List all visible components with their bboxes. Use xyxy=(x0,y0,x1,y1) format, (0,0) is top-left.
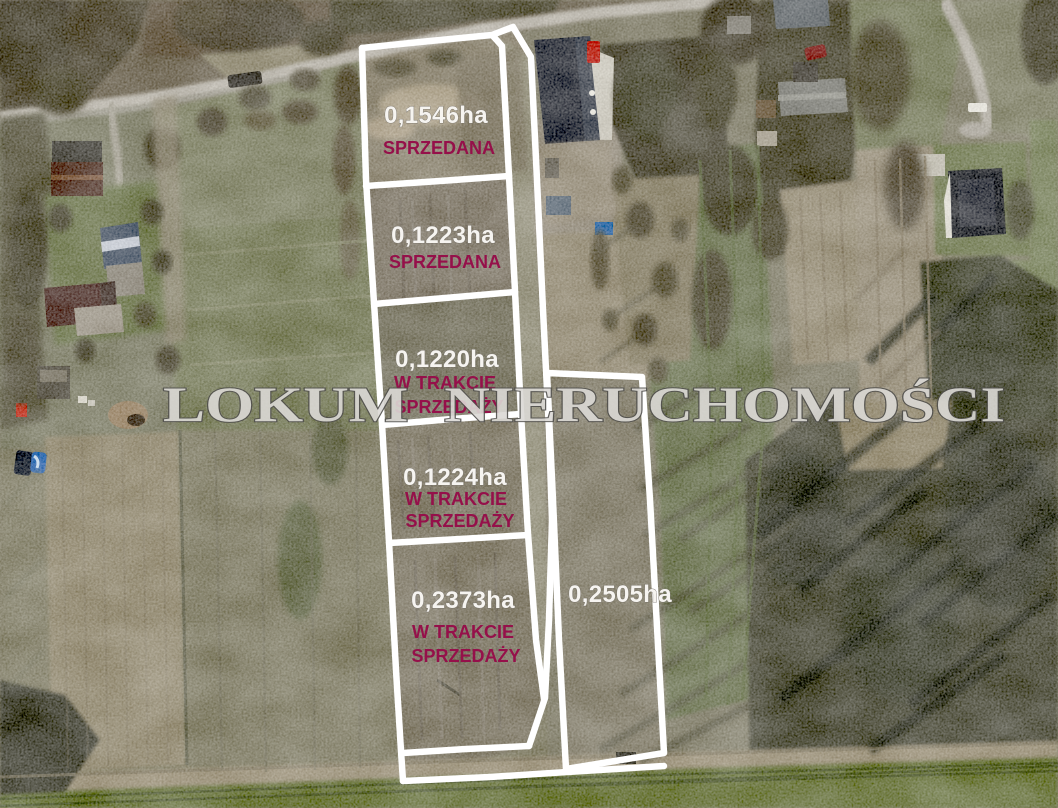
svg-text:0,2373ha: 0,2373ha xyxy=(411,587,515,614)
svg-text:W TRAKCIE: W TRAKCIE xyxy=(412,622,514,642)
svg-text:0,1223ha: 0,1223ha xyxy=(391,222,495,249)
svg-text:LOKUM NIERUCHOMOŚCI: LOKUM NIERUCHOMOŚCI xyxy=(163,376,1005,432)
svg-text:SPRZEDANA: SPRZEDANA xyxy=(383,138,495,158)
svg-text:W TRAKCIE: W TRAKCIE xyxy=(405,489,507,509)
svg-text:0,1546ha: 0,1546ha xyxy=(384,102,488,129)
svg-text:SPRZEDANA: SPRZEDANA xyxy=(389,252,501,272)
svg-text:0,1224ha: 0,1224ha xyxy=(403,464,507,491)
svg-text:SPRZEDAŻY: SPRZEDAŻY xyxy=(405,511,514,531)
svg-text:0,2505ha: 0,2505ha xyxy=(568,581,672,608)
svg-text:SPRZEDAŻY: SPRZEDAŻY xyxy=(411,646,520,666)
svg-text:0,1220ha: 0,1220ha xyxy=(395,346,499,373)
